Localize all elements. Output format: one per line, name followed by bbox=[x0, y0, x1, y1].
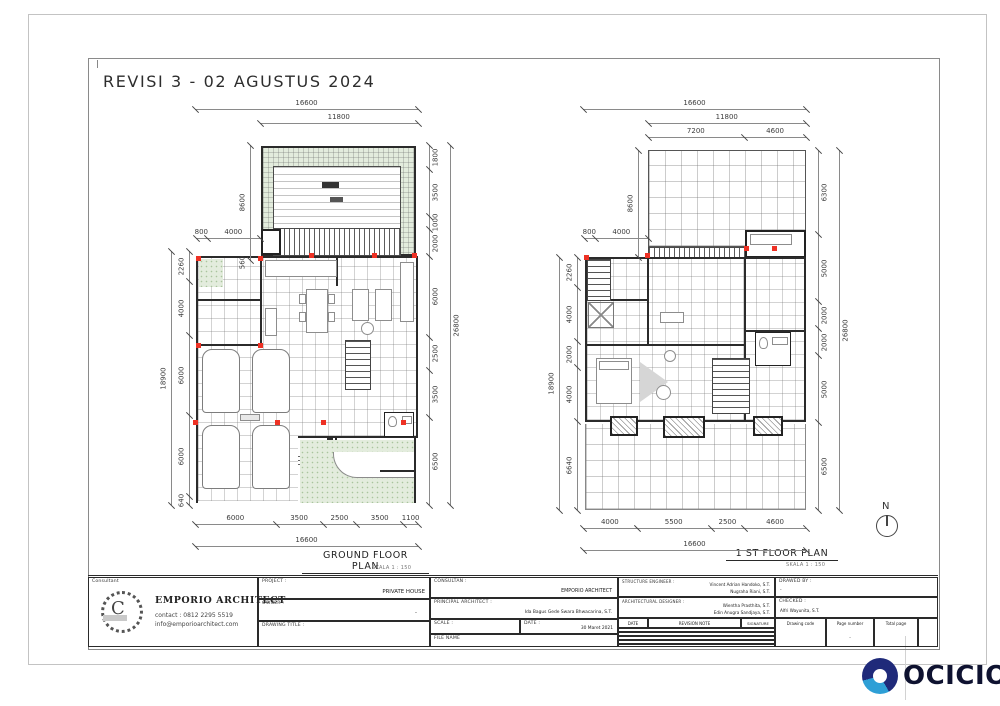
ocicio-logo-hole bbox=[873, 669, 887, 683]
dim-label: 16600 bbox=[290, 99, 324, 108]
rev-note-header-cell: REVISION NOTE bbox=[648, 618, 741, 628]
date-value: 30 Maret 2021 bbox=[581, 626, 613, 631]
page-number-value: - bbox=[827, 636, 873, 641]
project-cell: PROJECT : PRIVATE HOUSE bbox=[258, 577, 430, 599]
structure-engineer-value-2: Nugraha Riani, S.T. bbox=[730, 589, 770, 594]
dim-line bbox=[171, 251, 172, 505]
dim-label: 4000 bbox=[566, 378, 575, 412]
dim-label: 18900 bbox=[160, 361, 169, 395]
dim-label: 5000 bbox=[821, 251, 830, 285]
dim-label: 4600 bbox=[758, 127, 792, 136]
dim-line bbox=[648, 137, 807, 138]
total-page-cell: Total page bbox=[874, 618, 918, 647]
dim-label: 640 bbox=[178, 484, 187, 518]
firm-email: info@emporioarchitect.com bbox=[155, 621, 238, 628]
architectural-designer-value-2: Edin Anugra Sandjaya, S.T. bbox=[714, 610, 770, 615]
checked-cell: CHECKED : Alfri Wayunita, S.T. bbox=[775, 597, 938, 618]
dim-line bbox=[583, 550, 806, 551]
titleblock-topline bbox=[88, 575, 938, 576]
dim-label: 1800 bbox=[432, 140, 441, 174]
total-page-header: Total page bbox=[875, 621, 917, 626]
dim-label: 2500 bbox=[710, 518, 744, 527]
principal-architect-label: PRINCIPAL ARCHITECT : bbox=[434, 600, 492, 605]
drawedby-cell: DRAWED BY : - bbox=[775, 577, 938, 597]
drawing-title-label: DRAWING TITLE : bbox=[262, 623, 304, 628]
dim-label: 6500 bbox=[432, 444, 441, 478]
blank-cell bbox=[918, 618, 938, 647]
dim-label: 26800 bbox=[842, 313, 851, 347]
dim-label: 16600 bbox=[290, 536, 324, 545]
dim-line bbox=[260, 123, 419, 124]
logo-address-smudge bbox=[103, 615, 127, 621]
dim-line bbox=[189, 251, 190, 505]
consultan-cell: CONSULTAN : EMPORIO ARCHITECT bbox=[430, 577, 618, 598]
checked-value: Alfri Wayunita, S.T. bbox=[780, 608, 819, 613]
dim-label: 4600 bbox=[758, 518, 792, 527]
dim-label: 1100 bbox=[394, 514, 428, 523]
rev-date-header-cell: DATE bbox=[618, 618, 648, 628]
dim-label: 16600 bbox=[678, 99, 712, 108]
ocicio-wordmark: OCICIO bbox=[903, 661, 1000, 691]
dim-label: 4000 bbox=[566, 297, 575, 331]
dim-label: 18900 bbox=[548, 367, 557, 401]
dim-label: 2500 bbox=[432, 337, 441, 371]
structure-engineer-value-1: Vincent Adrian Handoko, S.T. bbox=[710, 582, 770, 587]
dim-label: 5000 bbox=[821, 372, 830, 406]
project-label: PROJECT : bbox=[262, 579, 287, 584]
dim-label: 3500 bbox=[363, 514, 397, 523]
dim-line bbox=[577, 258, 578, 511]
consultant-cell: Consultant C EMPORIO ARCHITECT contact :… bbox=[88, 577, 258, 647]
dim-label: 2500 bbox=[322, 514, 356, 523]
firm-contact: contact : 0812 2295 5519 bbox=[155, 612, 233, 619]
file-name-label: FILE NAME bbox=[434, 636, 460, 641]
dim-label: 6000 bbox=[178, 358, 187, 392]
dim-label: 6000 bbox=[178, 439, 187, 473]
dim-label: 6300 bbox=[821, 175, 830, 209]
rev-row bbox=[618, 644, 775, 647]
dim-line bbox=[583, 528, 806, 529]
drawing-code-cell: Drawing code bbox=[775, 618, 826, 647]
architectural-designer-value-1: Wientha Prasthita, S.T. bbox=[723, 603, 770, 608]
dim-label: 3500 bbox=[432, 377, 441, 411]
project-value: PRIVATE HOUSE bbox=[382, 589, 425, 595]
structure-cell: STRUCTURE ENGINEER : Vincent Adrian Hand… bbox=[618, 577, 775, 597]
dim-line bbox=[195, 546, 418, 547]
dim-label: 3500 bbox=[282, 514, 316, 523]
dim-line bbox=[559, 258, 560, 511]
date-label: DATE : bbox=[524, 621, 540, 626]
drawing-title-cell: DRAWING TITLE : bbox=[258, 621, 430, 647]
principal-cell: PRINCIPAL ARCHITECT : Ida Bagus Gede Swa… bbox=[430, 598, 618, 619]
dim-label: 4000 bbox=[216, 228, 250, 237]
dim-line bbox=[648, 123, 807, 124]
dim-line bbox=[839, 150, 840, 510]
date-cell: DATE : 30 Maret 2021 bbox=[520, 619, 618, 634]
dim-label: 2000 bbox=[566, 337, 575, 371]
dim-label: 4000 bbox=[604, 228, 638, 237]
dim-line bbox=[250, 145, 251, 261]
dim-label: 6640 bbox=[566, 449, 575, 483]
drawed-by-label: DRAWED BY : bbox=[779, 579, 812, 584]
dim-line bbox=[195, 109, 418, 110]
dim-label: 6500 bbox=[821, 449, 830, 483]
signature-header: SIGNATURE bbox=[742, 621, 774, 626]
dim-line bbox=[450, 145, 451, 505]
page-number-header: Page number bbox=[827, 621, 873, 626]
filename-cell: FILE NAME bbox=[430, 634, 618, 647]
owner-value: - bbox=[415, 610, 417, 616]
owner-cell: OWNER : - bbox=[258, 599, 430, 621]
dim-label: 800 bbox=[572, 228, 606, 237]
dim-label: 11800 bbox=[322, 113, 356, 122]
dim-label: 26800 bbox=[453, 308, 462, 342]
dim-label: 6000 bbox=[432, 280, 441, 314]
dim-line bbox=[638, 150, 639, 258]
drawing-sheet: REVISI 3 - 02 AGUSTUS 2024 bbox=[0, 0, 1000, 706]
architectural-designer-label: ARCHITECTURAL DESIGNER : bbox=[622, 599, 684, 604]
drawed-by-value: - bbox=[780, 588, 782, 593]
dim-line bbox=[583, 109, 806, 110]
dim-label: 2000 bbox=[432, 226, 441, 260]
consultan-label: CONSULTAN : bbox=[434, 579, 467, 584]
consultan-value: EMPORIO ARCHITECT bbox=[561, 589, 612, 594]
dim-label: 800 bbox=[184, 228, 218, 237]
dim-label: 2000 bbox=[821, 325, 830, 359]
principal-architect-value: Ida Bagus Gede Swara Bhwacarina, S.T. bbox=[525, 610, 612, 615]
scale-cell: SCALE : bbox=[430, 619, 520, 634]
structure-engineer-label: STRUCTURE ENGINEER : bbox=[622, 579, 675, 584]
rev-date-header: DATE bbox=[619, 621, 647, 626]
dim-label: 7200 bbox=[679, 127, 713, 136]
dim-label: 4000 bbox=[593, 518, 627, 527]
signature-header-cell: SIGNATURE bbox=[741, 618, 775, 628]
dim-label: 6000 bbox=[218, 514, 252, 523]
archdesigner-cell: ARCHITECTURAL DESIGNER : Wientha Prasthi… bbox=[618, 597, 775, 618]
dim-label: 8600 bbox=[627, 187, 636, 221]
dim-line bbox=[195, 524, 418, 525]
dim-label: 16600 bbox=[678, 540, 712, 549]
dim-label: 11800 bbox=[710, 113, 744, 122]
owner-label: OWNER : bbox=[262, 601, 284, 606]
checked-label: CHECKED : bbox=[779, 599, 806, 604]
rev-note-header: REVISION NOTE bbox=[649, 621, 740, 626]
dim-label: 4000 bbox=[178, 291, 187, 325]
dim-label: 8600 bbox=[239, 186, 248, 220]
page-number-cell: Page number - bbox=[826, 618, 874, 647]
dim-line bbox=[429, 145, 430, 505]
dim-label: 5500 bbox=[657, 518, 691, 527]
scale-label: SCALE : bbox=[434, 621, 453, 626]
consultant-label: Consultant bbox=[92, 579, 119, 584]
drawing-code-header: Drawing code bbox=[776, 621, 825, 626]
